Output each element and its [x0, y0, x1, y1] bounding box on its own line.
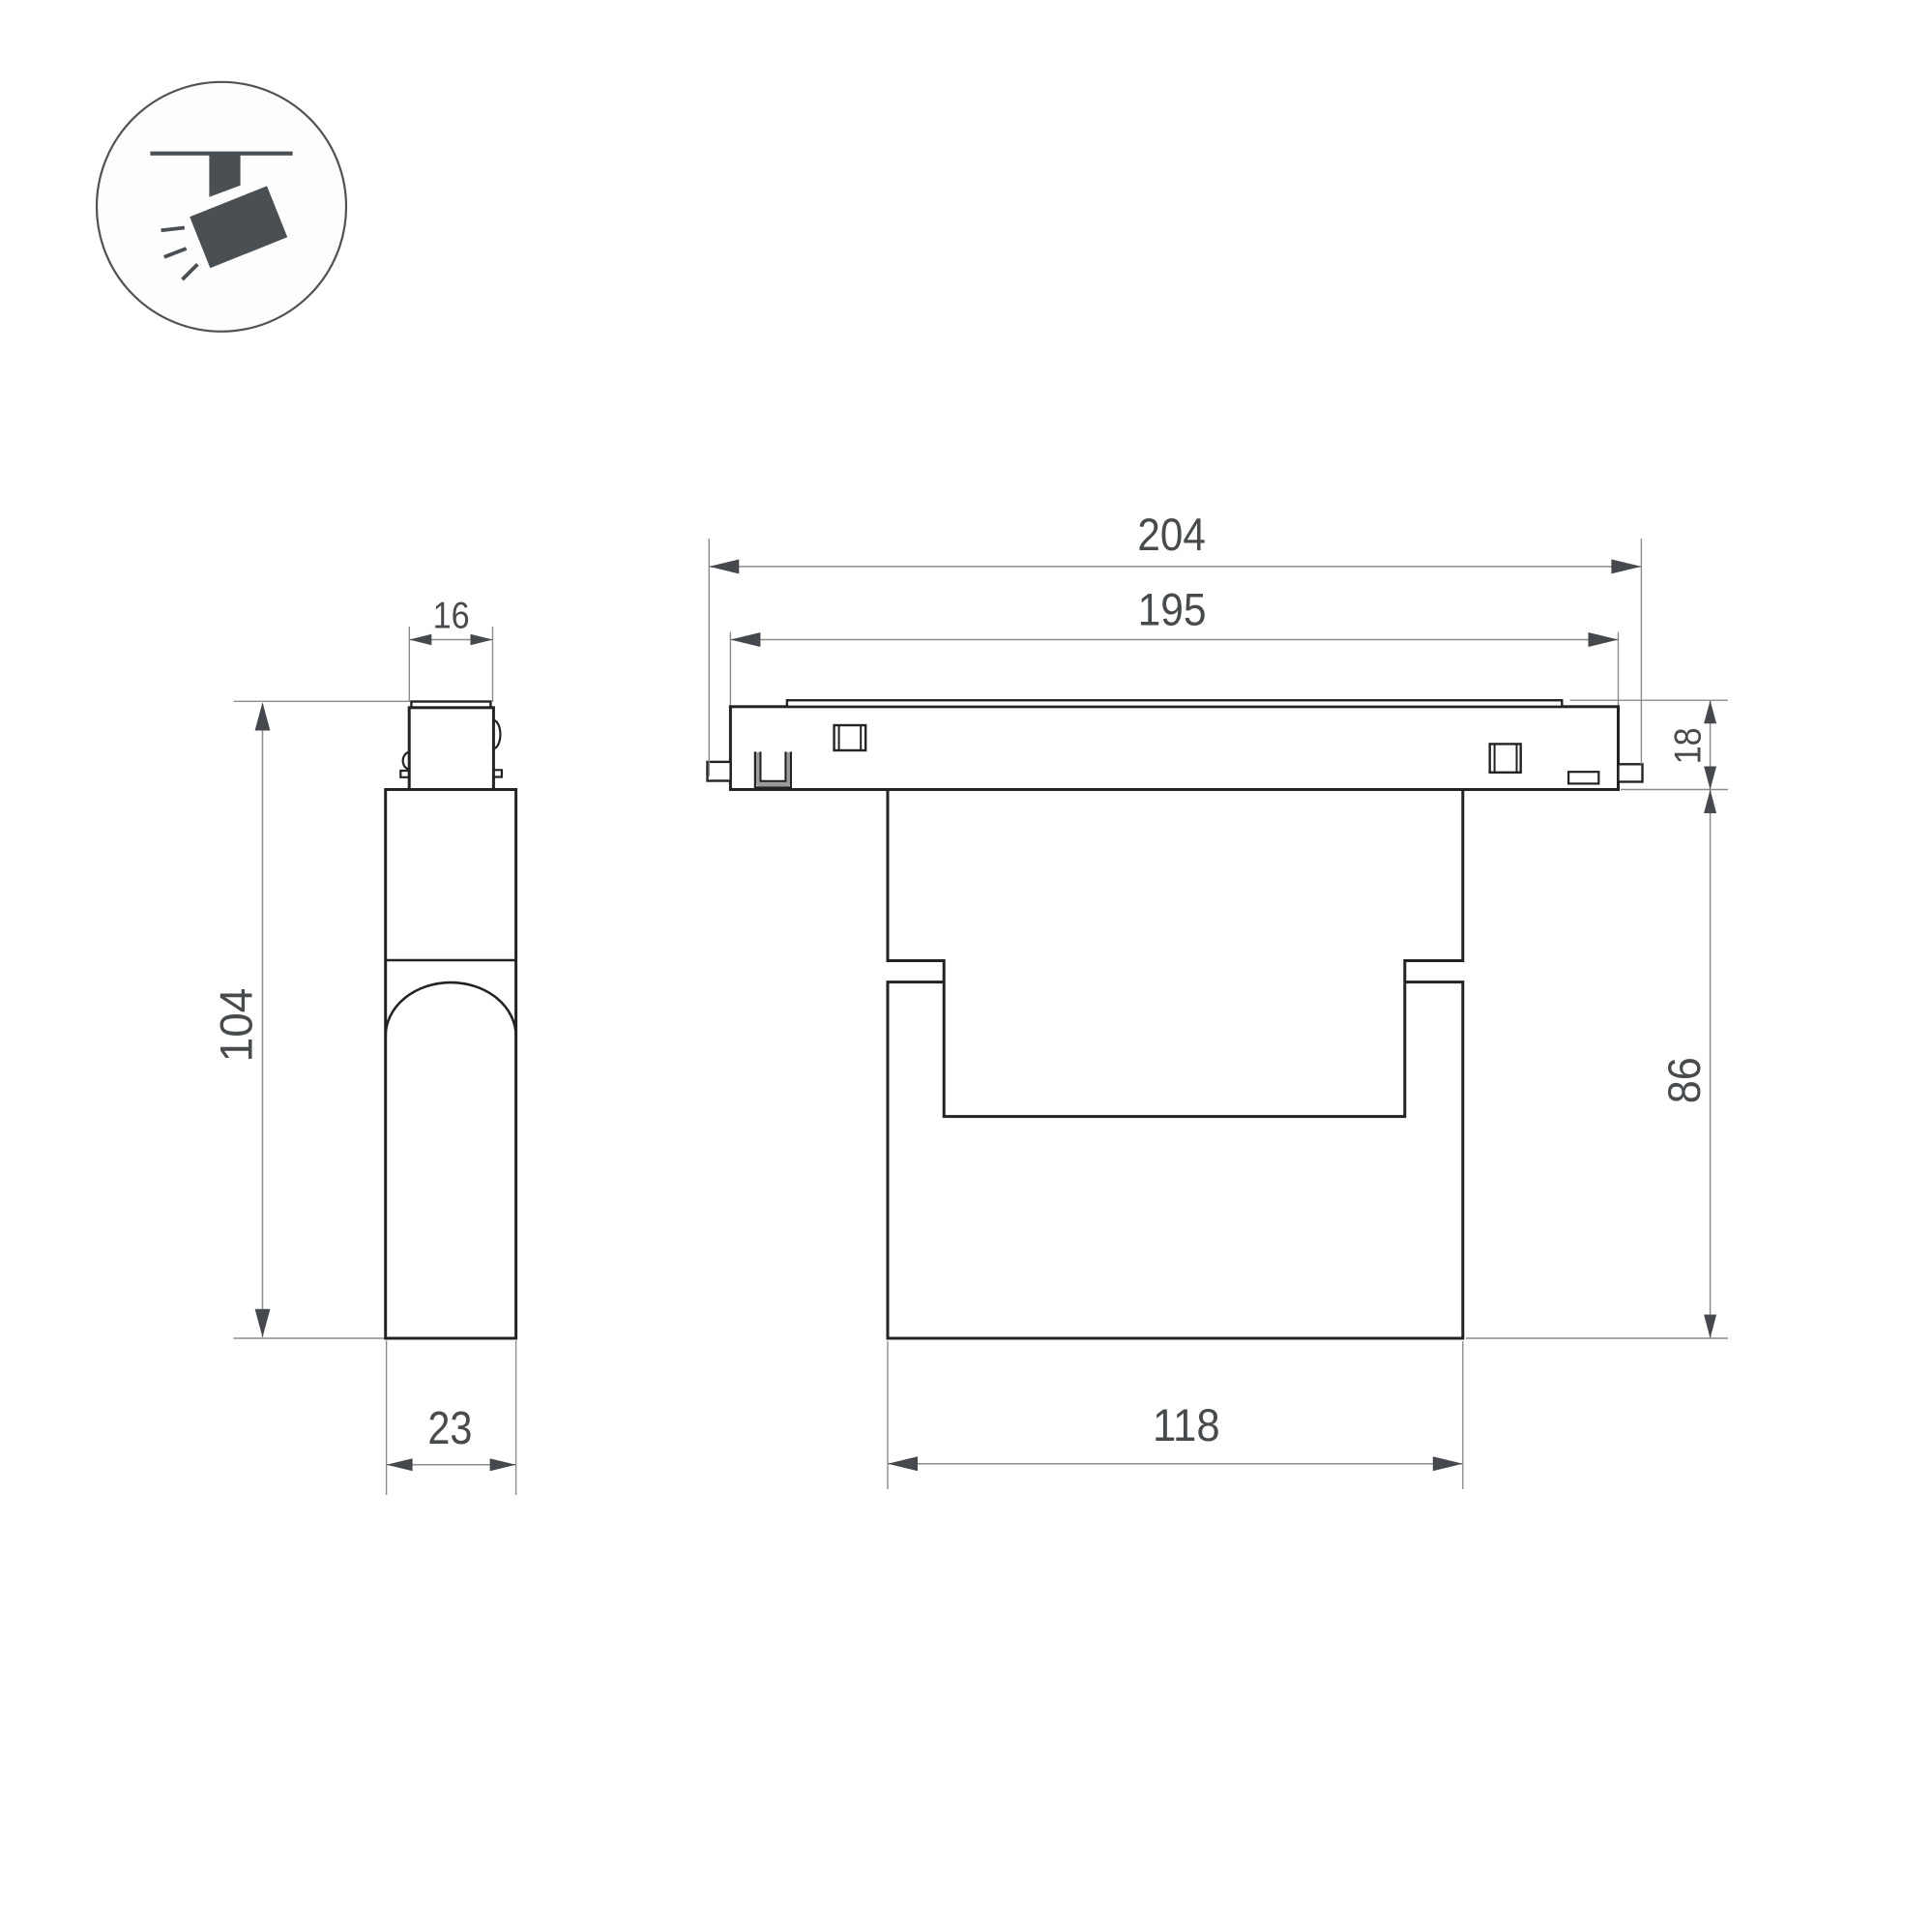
svg-text:16: 16: [433, 596, 470, 637]
svg-text:118: 118: [1153, 1400, 1220, 1451]
svg-text:104: 104: [212, 988, 263, 1063]
svg-text:23: 23: [427, 1403, 472, 1454]
svg-text:18: 18: [1667, 727, 1709, 764]
svg-text:204: 204: [1137, 510, 1205, 561]
svg-text:86: 86: [1659, 1057, 1711, 1103]
svg-text:195: 195: [1138, 584, 1207, 635]
